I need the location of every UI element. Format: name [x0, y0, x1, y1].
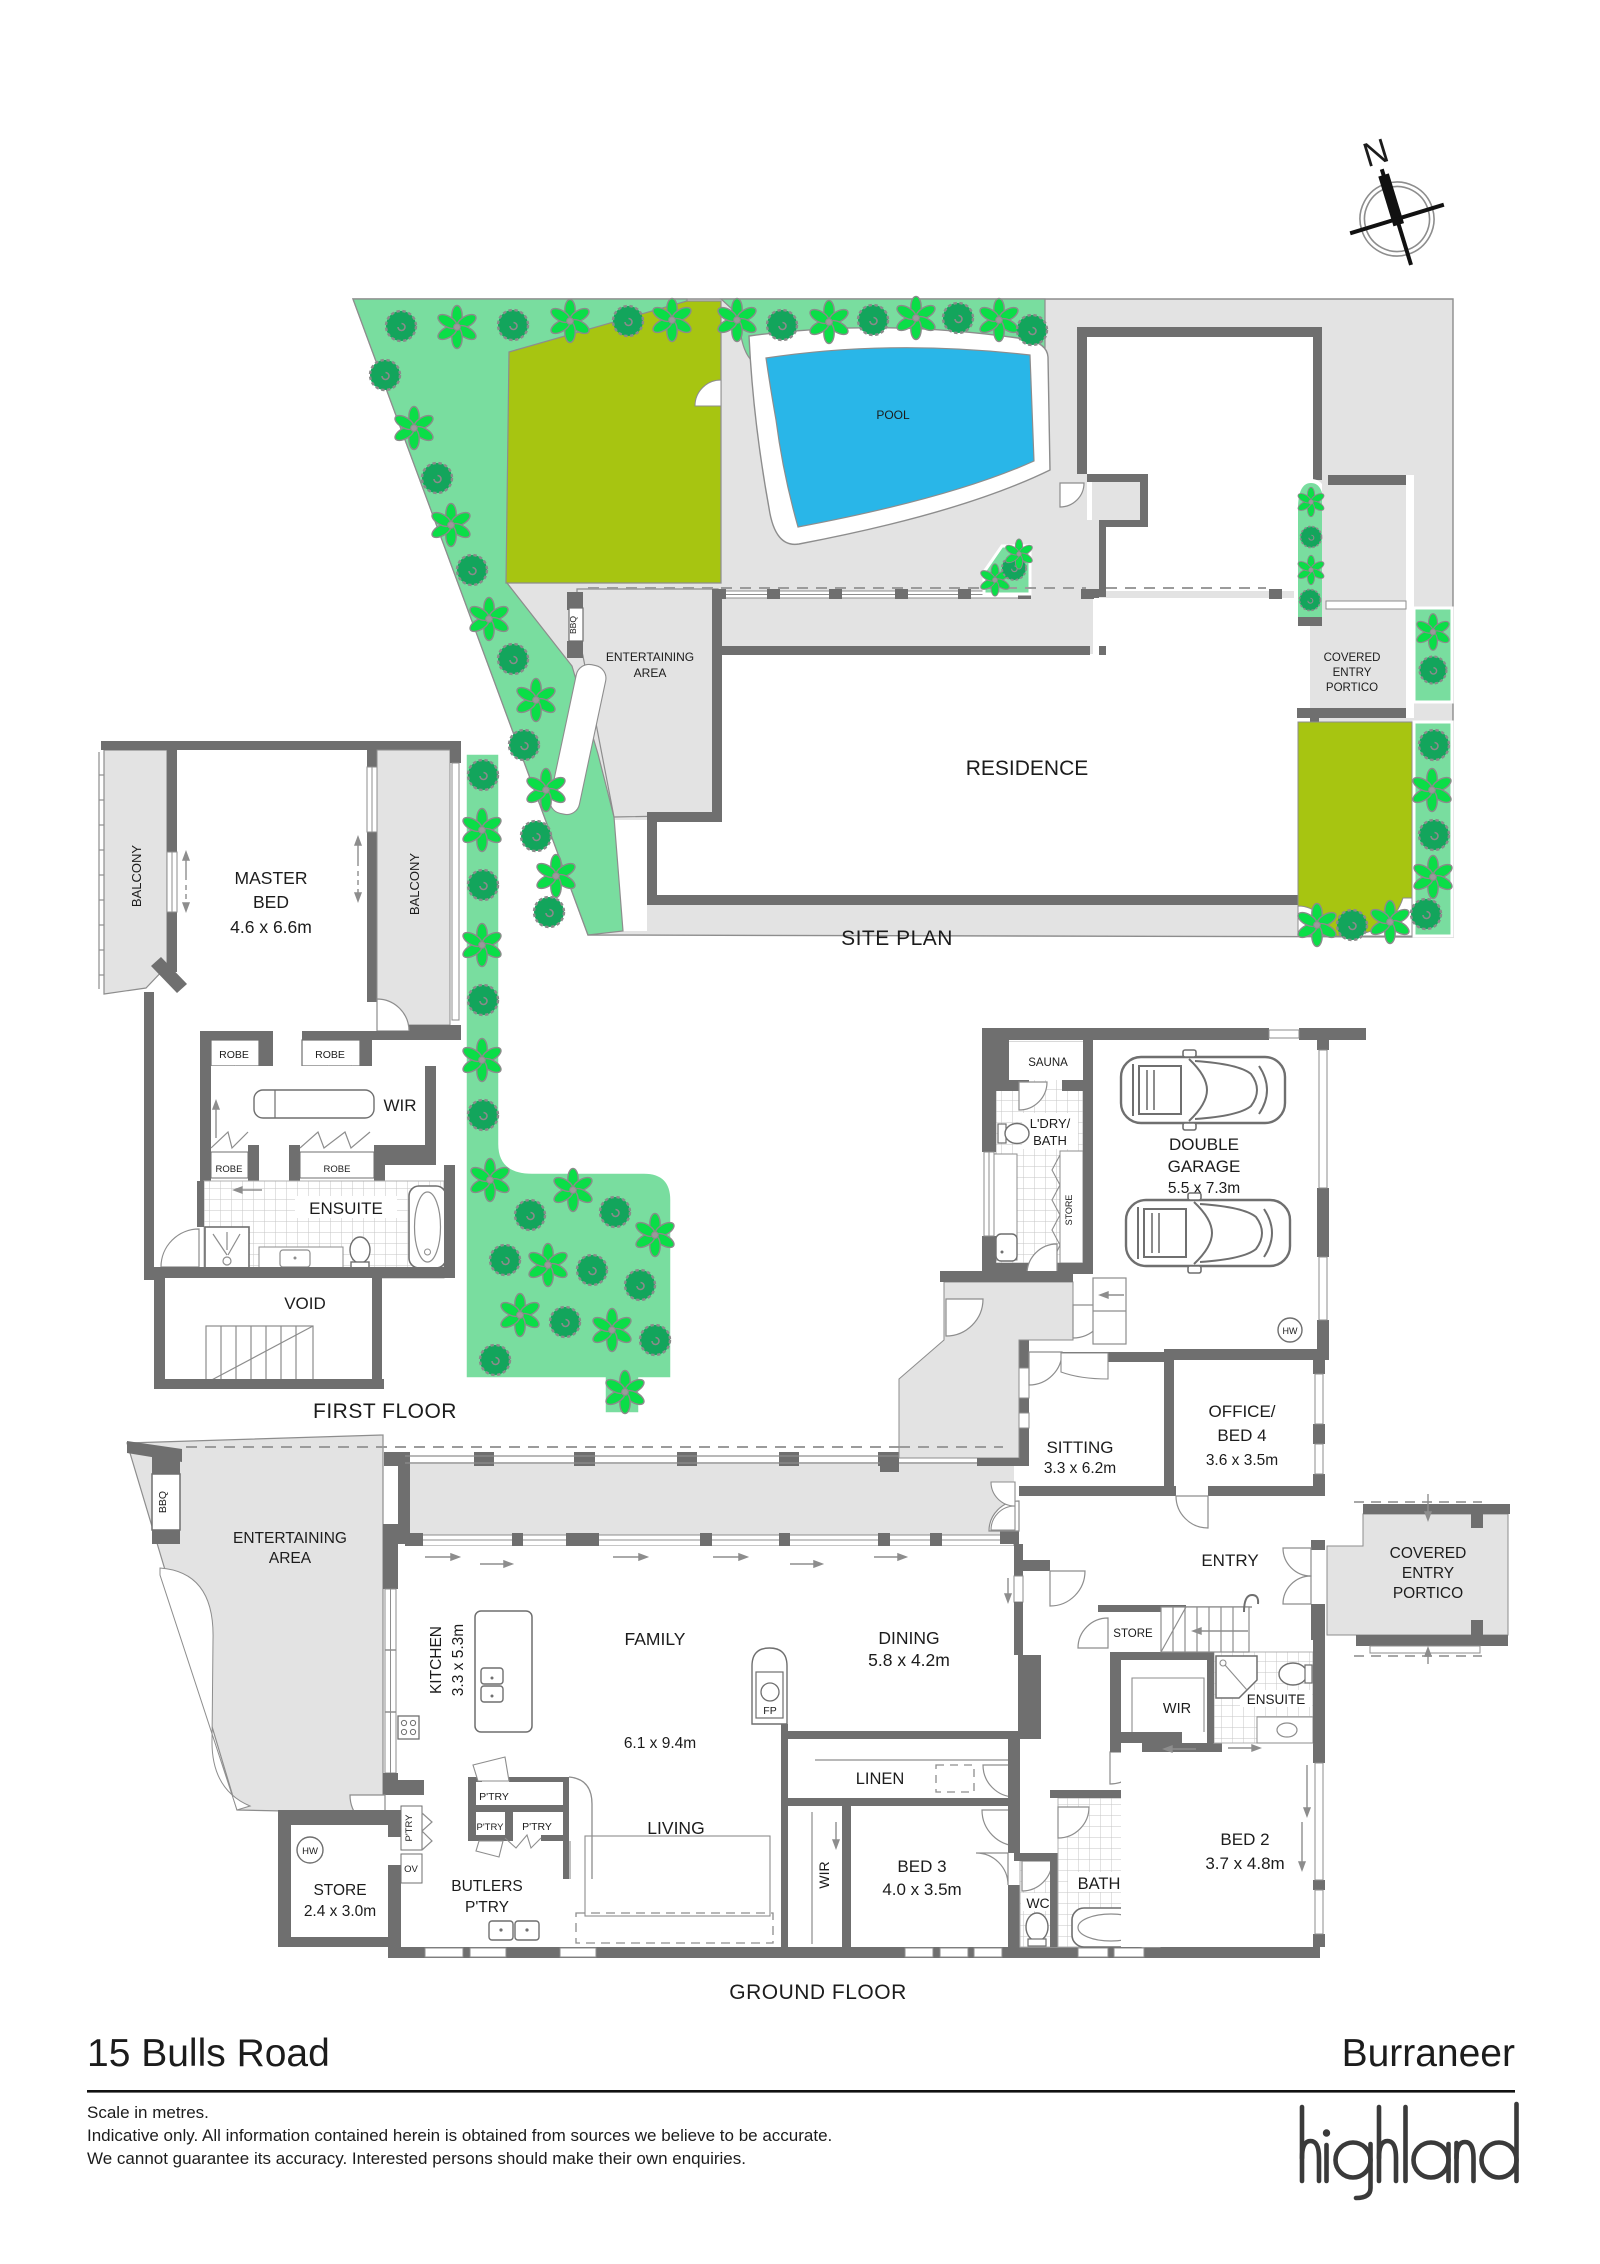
svg-text:COVERED: COVERED	[1390, 1545, 1467, 1562]
svg-text:WIR: WIR	[383, 1096, 416, 1115]
svg-text:FIRST FLOOR: FIRST FLOOR	[313, 1400, 457, 1423]
svg-text:STORE: STORE	[1064, 1195, 1074, 1226]
svg-text:SITTING: SITTING	[1046, 1438, 1113, 1457]
svg-text:ENTERTAINING: ENTERTAINING	[606, 650, 694, 664]
svg-text:BUTLERS: BUTLERS	[451, 1878, 523, 1895]
svg-text:FAMILY: FAMILY	[625, 1629, 686, 1649]
svg-text:HW: HW	[1283, 1326, 1298, 1336]
svg-text:P'TRY: P'TRY	[465, 1899, 509, 1916]
svg-text:3.7 x 4.8m: 3.7 x 4.8m	[1205, 1854, 1284, 1873]
svg-text:COVERED: COVERED	[1324, 652, 1381, 664]
svg-text:DOUBLE: DOUBLE	[1169, 1135, 1239, 1154]
svg-text:AREA: AREA	[269, 1550, 312, 1567]
svg-text:Burraneer: Burraneer	[1342, 2032, 1515, 2075]
svg-text:BATH: BATH	[1078, 1875, 1121, 1893]
svg-text:BBQ: BBQ	[157, 1491, 169, 1513]
svg-text:FP: FP	[763, 1705, 776, 1717]
svg-text:VOID: VOID	[284, 1294, 326, 1313]
svg-text:MASTER: MASTER	[235, 868, 308, 888]
svg-text:ROBE: ROBE	[216, 1164, 243, 1175]
svg-text:PORTICO: PORTICO	[1326, 682, 1378, 694]
svg-text:WIR: WIR	[1163, 1701, 1191, 1717]
svg-text:2.4 x 3.0m: 2.4 x 3.0m	[304, 1903, 376, 1920]
svg-text:ENTRY: ENTRY	[1333, 667, 1372, 679]
svg-text:KITCHEN: KITCHEN	[428, 1626, 445, 1694]
svg-text:ROBE: ROBE	[324, 1164, 351, 1175]
svg-text:ROBE: ROBE	[219, 1049, 249, 1061]
svg-text:4.0 x 3.5m: 4.0 x 3.5m	[882, 1880, 961, 1899]
svg-text:ENSUITE: ENSUITE	[1247, 1692, 1306, 1707]
svg-text:6.1 x 9.4m: 6.1 x 9.4m	[624, 1735, 696, 1752]
svg-text:4.6 x 6.6m: 4.6 x 6.6m	[230, 917, 312, 937]
svg-text:GROUND FLOOR: GROUND FLOOR	[729, 1981, 907, 2004]
svg-text:P'TRY: P'TRY	[522, 1821, 552, 1833]
svg-text:WIR: WIR	[816, 1861, 832, 1888]
svg-text:BED: BED	[253, 892, 289, 912]
svg-text:GARAGE: GARAGE	[1168, 1157, 1241, 1176]
svg-text:ENTERTAINING: ENTERTAINING	[233, 1530, 347, 1547]
svg-text:SITE PLAN: SITE PLAN	[841, 927, 953, 950]
svg-text:L'DRY/: L'DRY/	[1030, 1116, 1071, 1131]
svg-text:Scale in metres.: Scale in metres.	[87, 2103, 209, 2122]
svg-text:SAUNA: SAUNA	[1028, 1057, 1068, 1069]
svg-text:OV: OV	[404, 1864, 418, 1875]
svg-text:BED 2: BED 2	[1220, 1830, 1269, 1849]
svg-text:P'TRY: P'TRY	[477, 1822, 505, 1833]
svg-text:5.5 x 7.3m: 5.5 x 7.3m	[1168, 1180, 1240, 1197]
svg-text:BATH: BATH	[1033, 1133, 1067, 1148]
svg-text:HW: HW	[302, 1846, 318, 1857]
svg-text:BBQ: BBQ	[568, 616, 578, 634]
svg-text:We cannot guarantee its accura: We cannot guarantee its accuracy. Intere…	[87, 2149, 746, 2168]
svg-text:STORE: STORE	[1113, 1628, 1153, 1640]
svg-text:3.6 x 3.5m: 3.6 x 3.5m	[1206, 1452, 1278, 1469]
svg-text:STORE: STORE	[313, 1882, 366, 1899]
svg-text:DINING: DINING	[878, 1628, 939, 1648]
svg-text:AREA: AREA	[634, 666, 667, 680]
svg-text:ENTRY: ENTRY	[1201, 1551, 1258, 1570]
svg-text:Indicative only. All informati: Indicative only. All information contain…	[87, 2126, 832, 2145]
svg-text:5.8 x 4.2m: 5.8 x 4.2m	[868, 1650, 950, 1670]
svg-text:RESIDENCE: RESIDENCE	[966, 757, 1089, 780]
svg-text:3.3 x 6.2m: 3.3 x 6.2m	[1044, 1460, 1116, 1477]
svg-text:LINEN: LINEN	[856, 1770, 905, 1788]
svg-text:OFFICE/: OFFICE/	[1208, 1402, 1275, 1421]
svg-text:POOL: POOL	[876, 408, 910, 422]
svg-text:P'TRY: P'TRY	[404, 1814, 415, 1842]
svg-text:ROBE: ROBE	[315, 1049, 345, 1061]
svg-text:PORTICO: PORTICO	[1393, 1585, 1463, 1602]
svg-text:BED 3: BED 3	[897, 1857, 946, 1876]
svg-text:WC: WC	[1026, 1895, 1049, 1911]
svg-text:ENSUITE: ENSUITE	[309, 1199, 383, 1218]
svg-text:BALCONY: BALCONY	[129, 845, 144, 907]
svg-text:P'TRY: P'TRY	[479, 1791, 509, 1803]
svg-text:3.3 x 5.3m: 3.3 x 5.3m	[450, 1624, 467, 1696]
svg-text:BED 4: BED 4	[1217, 1426, 1266, 1445]
svg-text:15 Bulls Road: 15 Bulls Road	[87, 2032, 330, 2075]
svg-text:LIVING: LIVING	[647, 1818, 704, 1838]
svg-text:BALCONY: BALCONY	[407, 853, 422, 915]
svg-text:ENTRY: ENTRY	[1402, 1565, 1454, 1582]
